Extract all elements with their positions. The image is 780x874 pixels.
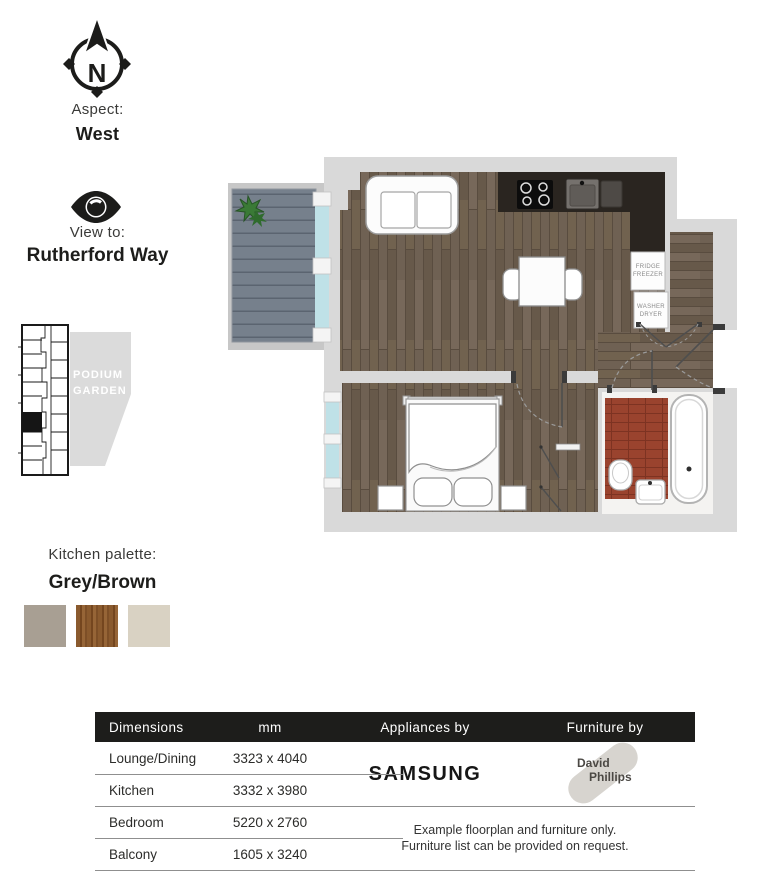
table-row-size: 5220 x 2760 xyxy=(205,806,335,838)
table-divider xyxy=(95,838,403,839)
compass-icon: N xyxy=(55,14,139,102)
sink-tap xyxy=(580,181,584,185)
bathtub-drain xyxy=(687,467,692,472)
table-body: Lounge/Dining 3323 x 4040 Kitchen 3332 x… xyxy=(95,742,695,870)
header-furniture-by: Furniture by xyxy=(515,720,695,735)
building-keyplan: PODIUM GARDEN xyxy=(15,320,150,480)
podium-label-line1: PODIUM xyxy=(73,369,123,381)
kitchen-palette-label: Kitchen palette: xyxy=(15,546,190,563)
table-row-size: 3323 x 4040 xyxy=(205,742,335,774)
basin-tap xyxy=(648,481,652,485)
sofa xyxy=(366,176,458,234)
pillow-left xyxy=(414,478,452,506)
david-phillips-line2: Phillips xyxy=(589,770,632,784)
sink-bowl xyxy=(570,185,595,206)
bedroom-window xyxy=(324,392,341,488)
table-row-room: Balcony xyxy=(95,838,205,870)
header-dimensions: Dimensions xyxy=(95,720,205,735)
podium-garden-shape xyxy=(70,332,131,466)
dining-table xyxy=(519,257,565,306)
table-row-size: 3332 x 3980 xyxy=(205,774,335,806)
page: { "compass": { "letter": "N" }, "aspect"… xyxy=(0,0,780,874)
washer-label-line2: DRYER xyxy=(640,312,663,318)
table-row-room: Kitchen xyxy=(95,774,205,806)
fridge-label-line2: FREEZER xyxy=(633,272,663,278)
table-row-room: Bedroom xyxy=(95,806,205,838)
bed xyxy=(403,396,502,511)
bedside-table-right xyxy=(501,486,526,510)
balcony-glazing xyxy=(313,192,331,342)
disclaimer-line2: Furniture list can be provided on reques… xyxy=(401,838,628,854)
swatch-brown xyxy=(76,605,118,647)
table-row-size: 1605 x 3240 xyxy=(205,838,335,870)
header-appliances-by: Appliances by xyxy=(335,720,515,735)
disclaimer-line1: Example floorplan and furniture only. xyxy=(414,822,617,838)
view-label: View to: xyxy=(30,224,165,241)
table-header: Dimensions mm Appliances by Furniture by xyxy=(95,712,695,742)
swatch-cream xyxy=(128,605,170,647)
apartment-location-marker xyxy=(22,412,42,432)
fridge-label-line1: FRIDGE xyxy=(636,264,660,270)
dimensions-table: Dimensions mm Appliances by Furniture by… xyxy=(95,712,695,872)
table-divider xyxy=(95,806,695,807)
washer-label-line1: WASHER xyxy=(637,304,665,310)
aspect-value: West xyxy=(40,124,155,145)
north-arrow-icon xyxy=(84,17,110,54)
swatch-grey xyxy=(24,605,66,647)
drainer xyxy=(601,181,622,207)
table-divider xyxy=(95,870,695,871)
podium-label-line2: GARDEN xyxy=(73,385,127,397)
kitchen-palette-value: Grey/Brown xyxy=(15,572,190,594)
bathtub xyxy=(671,395,707,503)
david-phillips-line1: David xyxy=(577,756,610,770)
header-mm: mm xyxy=(205,720,335,735)
aspect-label: Aspect: xyxy=(40,101,155,118)
hall-floor-upper xyxy=(670,232,713,332)
floorplan-svg: FRIDGE FREEZER WASHER DRYER xyxy=(205,140,770,545)
table-divider xyxy=(95,774,403,775)
compass-letter: N xyxy=(88,58,107,88)
eye-icon xyxy=(68,190,124,224)
building-outline xyxy=(22,325,68,475)
view-value: Rutherford Way xyxy=(0,245,195,267)
table-row-room: Lounge/Dining xyxy=(95,742,205,774)
pillow-right xyxy=(454,478,492,506)
palette-swatches xyxy=(0,605,200,647)
david-phillips-logo: David Phillips xyxy=(515,742,695,806)
bedside-table-left xyxy=(378,486,403,510)
bathroom xyxy=(602,392,713,514)
fridge-freezer-box xyxy=(631,252,665,290)
